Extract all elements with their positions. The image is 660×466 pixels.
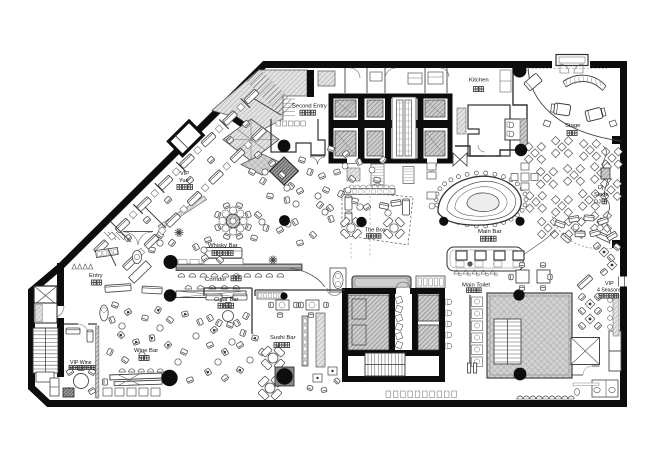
svg-text:Entry: Entry: [89, 273, 103, 279]
svg-text:Yue: Yue: [179, 178, 189, 184]
svg-text:VIP: VIP: [605, 281, 614, 287]
svg-text:VIP: VIP: [180, 171, 189, 177]
svg-text:Dj: Dj: [598, 185, 603, 191]
svg-text:Kitchen: Kitchen: [469, 78, 489, 84]
svg-text:Whisky Bar: Whisky Bar: [208, 243, 238, 249]
svg-text:Cigar Bar: Cigar Bar: [214, 297, 239, 303]
svg-text:Second Entry: Second Entry: [292, 104, 327, 110]
svg-text:Corridor: Corridor: [205, 277, 226, 283]
svg-text:Sushi Bar: Sushi Bar: [270, 335, 296, 341]
svg-text:Wine Bar: Wine Bar: [134, 348, 158, 354]
svg-text:DJ: DJ: [594, 200, 601, 206]
svg-text:4 Seasons: 4 Seasons: [597, 288, 622, 294]
svg-text:The Box: The Box: [365, 227, 386, 233]
svg-text:Stage: Stage: [565, 123, 581, 129]
svg-text:Main Bar: Main Bar: [478, 229, 502, 235]
svg-text:Stage: Stage: [594, 192, 609, 198]
